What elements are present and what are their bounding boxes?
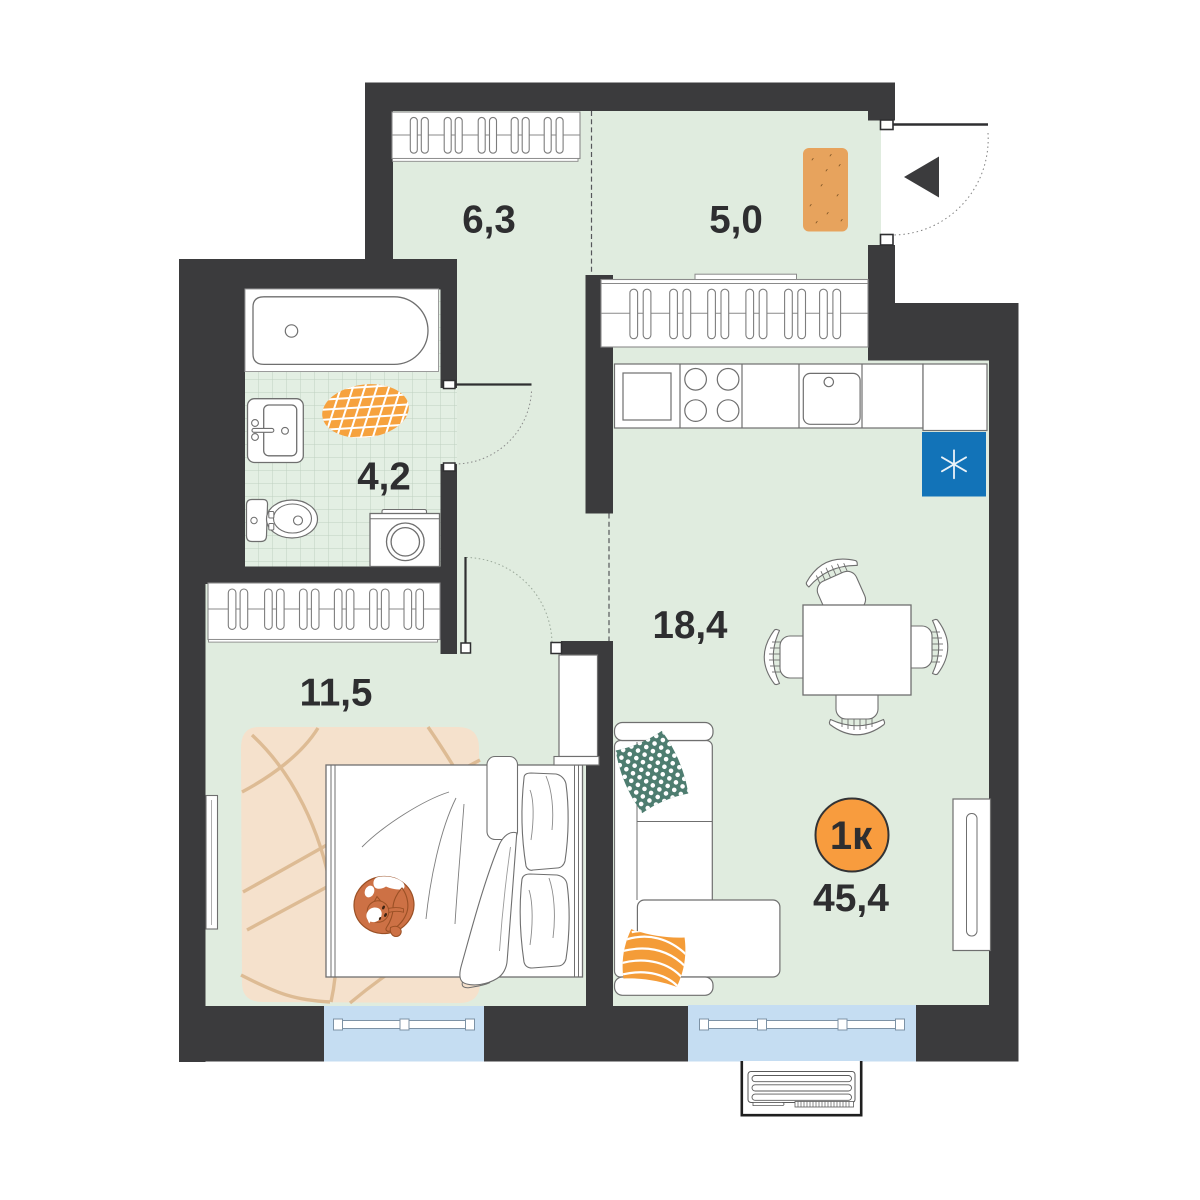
svg-text:5,0: 5,0	[709, 199, 763, 242]
svg-text:18,4: 18,4	[653, 604, 729, 647]
svg-text:1к: 1к	[830, 814, 873, 858]
svg-text:6,3: 6,3	[462, 199, 516, 242]
svg-text:4,2: 4,2	[357, 456, 411, 499]
svg-text:11,5: 11,5	[300, 672, 373, 715]
svg-text:45,4: 45,4	[813, 877, 889, 920]
